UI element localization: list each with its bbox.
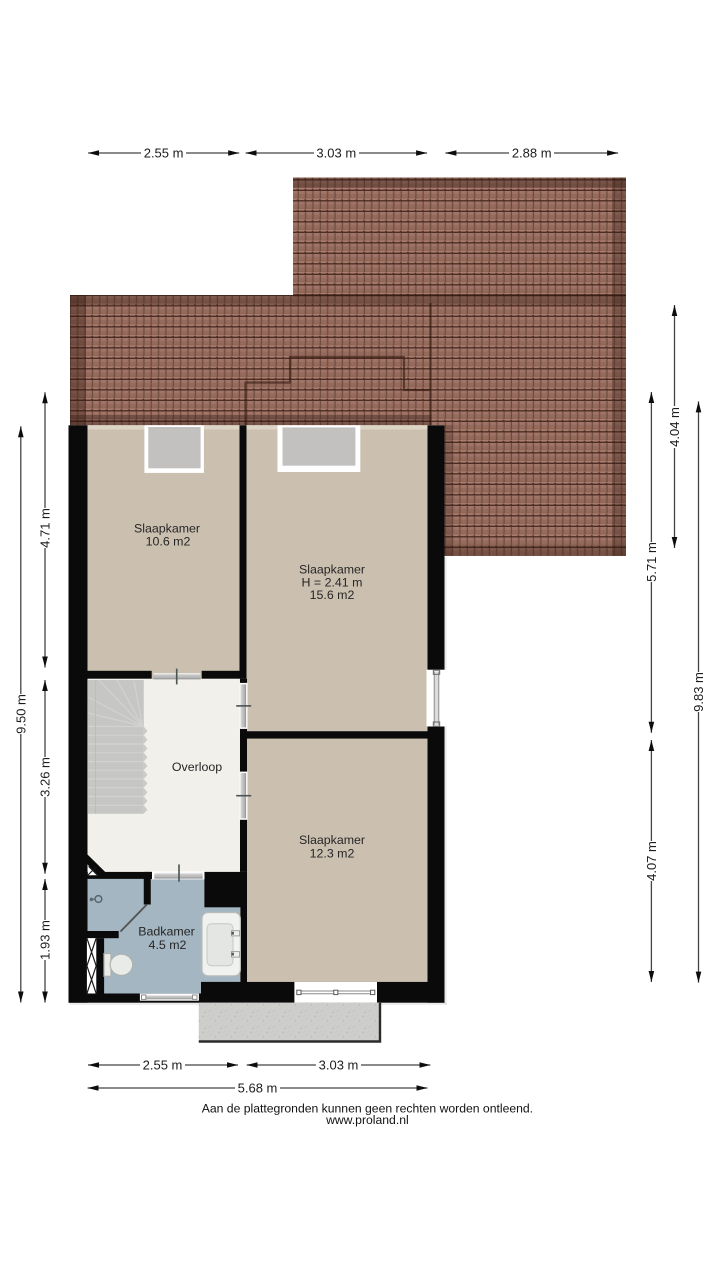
svg-text:2.55 m: 2.55 m: [143, 1058, 183, 1073]
svg-text:2.88 m: 2.88 m: [512, 146, 552, 161]
svg-text:Badkamer: Badkamer: [138, 925, 194, 939]
svg-text:4.07 m: 4.07 m: [644, 841, 659, 881]
svg-text:1.93 m: 1.93 m: [38, 920, 53, 960]
svg-text:15.6 m2: 15.6 m2: [310, 588, 355, 602]
svg-text:Slaapkamer: Slaapkamer: [299, 833, 365, 847]
svg-text:4.04 m: 4.04 m: [667, 407, 682, 447]
svg-text:4.71 m: 4.71 m: [38, 508, 53, 548]
svg-text:5.68 m: 5.68 m: [238, 1081, 278, 1096]
svg-text:12.3 m2: 12.3 m2: [310, 846, 355, 860]
svg-text:10.6 m2: 10.6 m2: [146, 535, 191, 549]
svg-text:Overloop: Overloop: [172, 760, 222, 774]
svg-text:5.71 m: 5.71 m: [644, 542, 659, 582]
svg-text:9.50 m: 9.50 m: [13, 694, 28, 734]
svg-text:9.83 m: 9.83 m: [691, 672, 706, 712]
svg-text:Slaapkamer: Slaapkamer: [134, 522, 200, 536]
svg-text:www.proland.nl: www.proland.nl: [325, 1113, 409, 1127]
svg-text:3.26 m: 3.26 m: [38, 757, 53, 797]
svg-text:Slaapkamer: Slaapkamer: [299, 562, 365, 576]
svg-text:2.55 m: 2.55 m: [144, 146, 184, 161]
svg-text:3.03 m: 3.03 m: [319, 1058, 359, 1073]
svg-text:3.03 m: 3.03 m: [316, 146, 356, 161]
svg-text:4.5 m2: 4.5 m2: [149, 938, 187, 952]
